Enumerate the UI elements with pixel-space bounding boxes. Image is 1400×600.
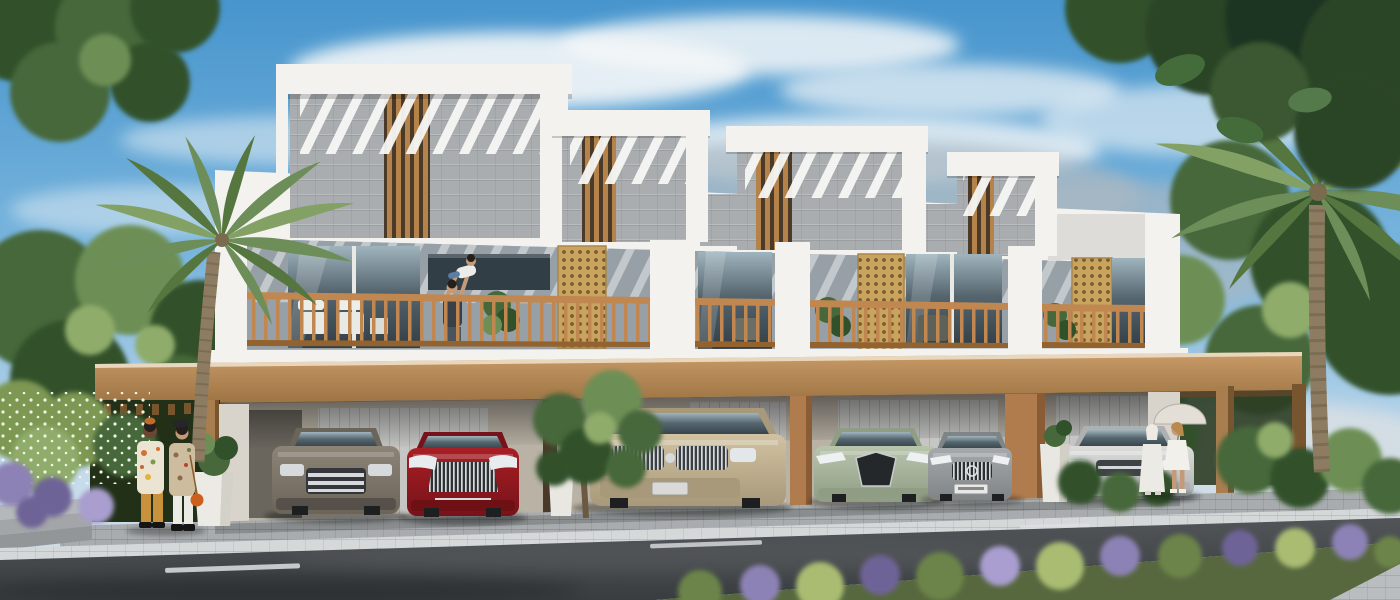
unit-3-roof-pergola bbox=[726, 126, 928, 252]
unit-4-roof-pergola bbox=[947, 152, 1059, 256]
balcony-railing-2 bbox=[695, 298, 775, 347]
architectural-render bbox=[0, 0, 1400, 600]
bay-pillar-tan bbox=[790, 396, 812, 508]
balcony-railing-1 bbox=[247, 292, 650, 347]
balcony-level bbox=[215, 236, 1180, 354]
unit-2-roof-pergola bbox=[552, 110, 710, 242]
window-1 bbox=[428, 254, 550, 290]
balcony-railing-3 bbox=[810, 300, 1008, 348]
orange-bag bbox=[191, 494, 204, 507]
scene-svg bbox=[0, 0, 1400, 600]
balcony-railing-4 bbox=[1042, 304, 1145, 348]
